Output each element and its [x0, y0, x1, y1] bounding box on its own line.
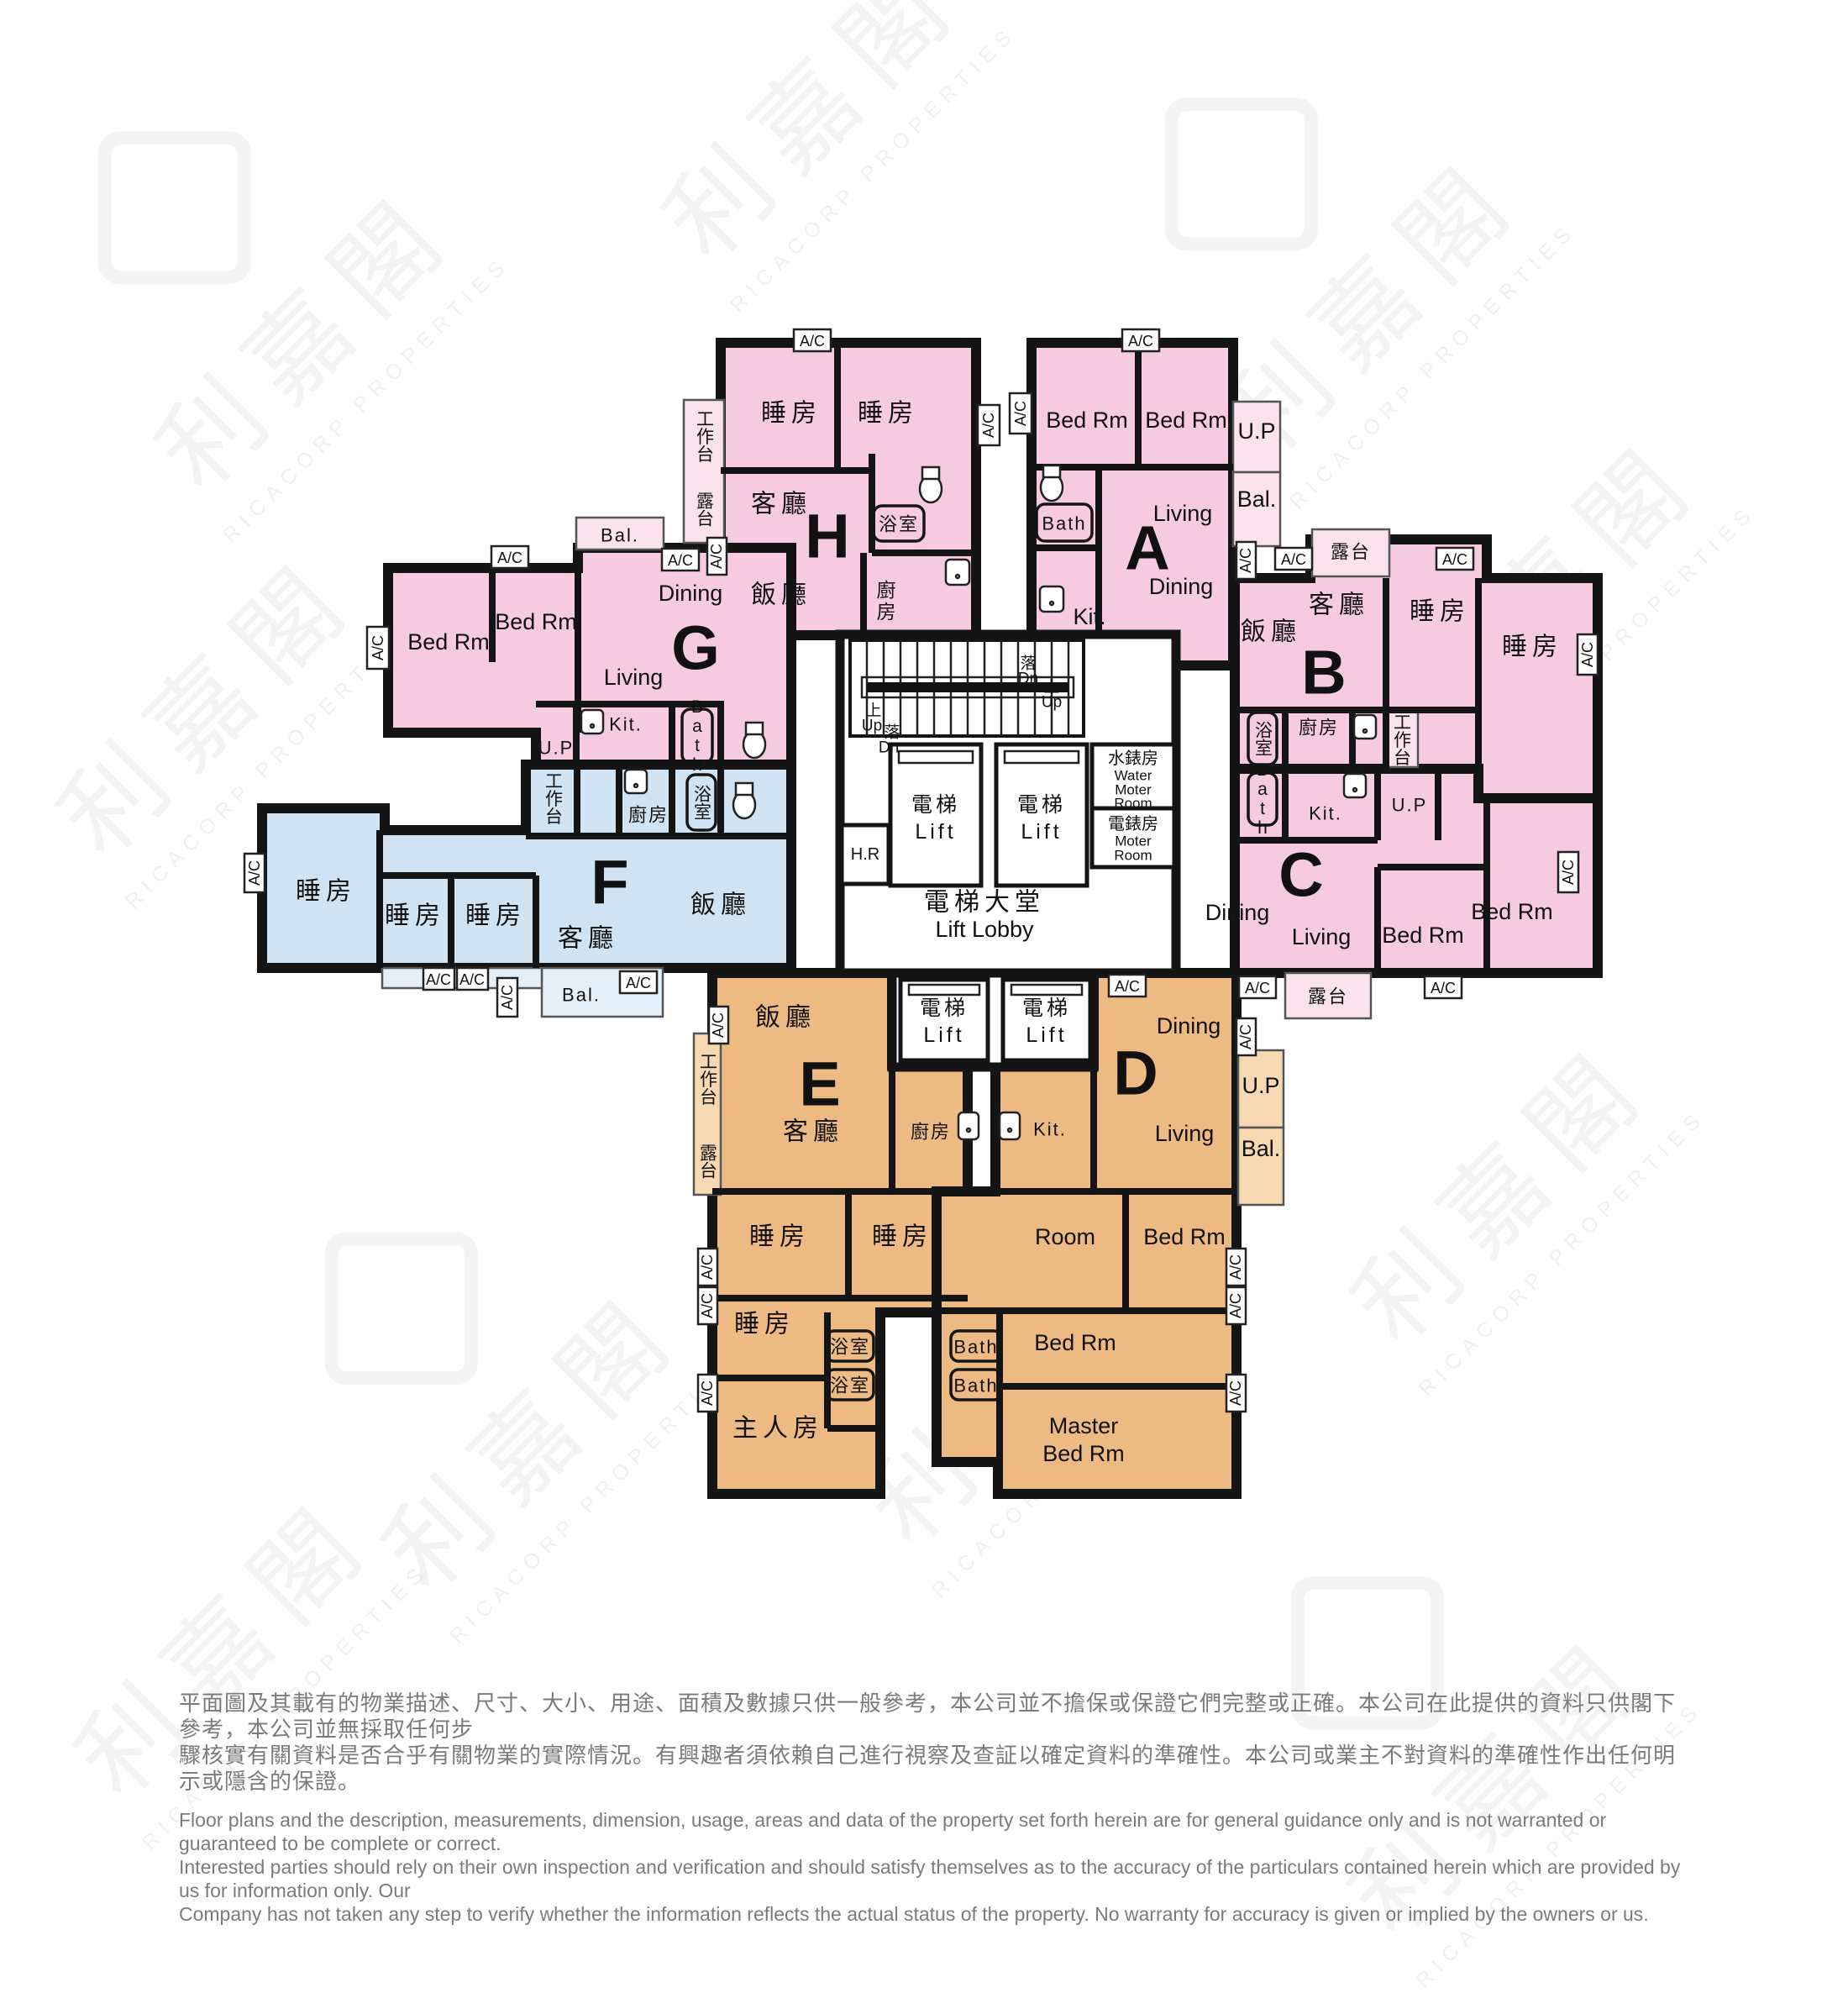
ac-label: A/C: [1281, 551, 1306, 568]
room-label-bedroom: Bed Rm: [1143, 1224, 1226, 1249]
ac-label: A/C: [980, 413, 997, 438]
room-label-bedroom: Bed Rm: [1145, 408, 1227, 433]
room-label-bedroom: 睡房: [465, 902, 526, 930]
room-label-balcony: 露台: [1308, 986, 1348, 1007]
lift-label: 電梯: [920, 996, 969, 1020]
disclaimer-gap: [179, 1795, 1691, 1808]
lift-label: 電梯: [911, 793, 960, 817]
ac-label: A/C: [626, 975, 651, 991]
room-label-utility: U.P: [1237, 418, 1275, 444]
kitchen-sink: [625, 770, 647, 793]
room-label-dining: 飯廳: [690, 891, 751, 919]
room-label-living: 客廳: [783, 1118, 843, 1146]
ac-label: A/C: [499, 985, 516, 1010]
kitchen-sink: [946, 560, 969, 585]
ac-label: A/C: [1237, 1024, 1254, 1049]
ac-label: A/C: [370, 635, 386, 660]
room-label-bedroom: 睡房: [296, 878, 356, 906]
lift-label: Lift: [1021, 820, 1062, 844]
toilet: [1041, 465, 1063, 501]
room-label-bedroom: 睡房: [761, 400, 822, 428]
room-label-living: Living: [1153, 501, 1213, 526]
room-label-bath: Bath: [1253, 760, 1273, 838]
lift-label: Lift: [923, 1023, 964, 1047]
kitchen-sink: [1040, 586, 1063, 612]
toilet: [743, 723, 765, 758]
room-label-living: Living: [1155, 1121, 1215, 1146]
room-label-bath: 浴室: [830, 1337, 870, 1358]
unit-letter-e: E: [799, 1049, 840, 1119]
ac-label: A/C: [708, 544, 725, 569]
ac-label: A/C: [246, 860, 263, 886]
hose-reel-label: H.R: [851, 845, 879, 864]
room-label-kitchen: 廚房: [628, 805, 669, 826]
electric-meter-label: 電錶房: [1108, 814, 1158, 833]
room-label-kitchen: Kit.: [1073, 604, 1105, 629]
kitchen-sink: [1354, 715, 1376, 739]
ac-label: A/C: [800, 333, 825, 350]
room-label-balcony: 露台: [1331, 542, 1371, 563]
room-label-dining: 飯廳: [751, 581, 811, 609]
room-label-balcony: Bal.: [1237, 486, 1277, 512]
room-label-balcony: Bal.: [1242, 1136, 1281, 1161]
room-label-bedroom: Bed Rm: [407, 629, 490, 655]
ac-label: A/C: [1128, 333, 1153, 350]
room-label-bath: 浴室: [879, 514, 919, 535]
room-label-bedroom: Bed Rm: [1471, 899, 1553, 924]
ac-label: A/C: [1237, 548, 1254, 573]
lift-label: Lift: [915, 820, 956, 844]
room-label-utility: U.P: [1392, 795, 1428, 816]
unit-letter-d: D: [1113, 1039, 1158, 1108]
room-label-bedroom: Bed Rm: [495, 609, 577, 634]
lift-label: Lift: [1026, 1023, 1067, 1047]
ac-label: A/C: [459, 971, 485, 988]
room-label-kitchen: 廚房: [1299, 718, 1339, 739]
room-label-master-bedroom: Bed Rm: [1042, 1441, 1125, 1466]
lift-shaft: [900, 980, 988, 1060]
room-label-living: 客廳: [1309, 592, 1369, 619]
unit-g-area: [388, 548, 791, 769]
stair-down-label-en: Dn: [879, 739, 899, 757]
water-meter-label-en: Room: [1114, 796, 1152, 812]
room-label-bedroom: 睡房: [734, 1311, 795, 1338]
room-label-kitchen: 廚房: [874, 580, 896, 623]
room-label-dining: Dining: [1149, 574, 1214, 599]
lift-lobby-label-en: Lift Lobby: [935, 917, 1034, 942]
ac-label: A/C: [1227, 1254, 1244, 1280]
kitchen-sink: [1344, 774, 1366, 797]
room-label-balcony: Bal.: [562, 985, 601, 1006]
room-label-worktop: 工作台: [543, 772, 564, 825]
ac-label: A/C: [426, 971, 451, 988]
kitchen-sink: [958, 1112, 979, 1139]
room-label-bedroom: 睡房: [872, 1223, 932, 1251]
room-label-dining: 飯廳: [755, 1004, 816, 1032]
room-label-kitchen: Kit.: [1309, 803, 1342, 824]
unit-letter-g: G: [671, 613, 720, 683]
room-label-bedroom: Bed Rm: [1382, 923, 1464, 948]
unit-letter-h: H: [805, 502, 849, 571]
toilet: [920, 467, 942, 502]
room-label-bedroom: 睡房: [858, 400, 918, 428]
room-label-living: Living: [604, 665, 664, 690]
disclaimer-zh-line2: 驟核實有關資料是否合乎有關物業的實際情況。有興趣者須依賴自己進行視察及查証以確定…: [179, 1743, 1691, 1795]
room-label-bath: Bath: [953, 1375, 998, 1396]
ac-label: A/C: [1012, 401, 1029, 426]
room-label-bath: 浴室: [692, 785, 712, 820]
unit-f-area: [262, 765, 791, 968]
lift-lobby-label: 電梯大堂: [924, 889, 1045, 917]
stair-up-label-en: Up: [862, 718, 882, 735]
ac-label: A/C: [1245, 980, 1270, 996]
room-label-dining: Dining: [1205, 900, 1270, 925]
room-label-dining: Dining: [659, 581, 723, 606]
ac-label: A/C: [1560, 860, 1577, 885]
room-label-room: Room: [1035, 1224, 1095, 1249]
room-label-living: 客廳: [558, 925, 618, 953]
room-label-bath: Bath: [953, 1337, 998, 1358]
disclaimer-en-line2: Interested parties should rely on their …: [179, 1855, 1691, 1902]
room-label-living: Living: [1292, 924, 1352, 949]
ac-label: A/C: [1227, 1293, 1244, 1318]
room-label-bedroom: 睡房: [1410, 598, 1470, 626]
room-label-balcony: 露台: [695, 492, 714, 527]
room-label-kitchen: Kit.: [609, 714, 643, 735]
room-label-bath: Bath: [1042, 513, 1086, 534]
room-label-dining: 飯廳: [1241, 618, 1301, 646]
room-label-bedroom: Bed Rm: [1034, 1330, 1116, 1355]
unit-letter-c: C: [1278, 840, 1323, 910]
ac-label: A/C: [1579, 642, 1596, 667]
disclaimer-zh-line1: 平面圖及其載有的物業描述、尺寸、大小、用途、面積及數據只供一般參考，本公司並不擔…: [179, 1691, 1691, 1743]
room-label-bath: 浴室: [830, 1375, 870, 1396]
room-label-balcony: Bal.: [601, 525, 639, 546]
ac-label: A/C: [699, 1380, 716, 1406]
room-label-master-bedroom: Master: [1049, 1413, 1119, 1438]
unit-letter-b: B: [1301, 638, 1346, 707]
room-label-worktop: 工作台: [698, 1053, 718, 1106]
room-label-worktop: 工作台: [695, 410, 715, 463]
room-label-bedroom: 睡房: [749, 1223, 810, 1251]
ac-label: A/C: [668, 552, 693, 569]
stair-up-label-en: Up: [1042, 694, 1062, 712]
lift-label: 電梯: [1017, 793, 1066, 817]
room-label-bedroom: 睡房: [1502, 634, 1562, 661]
water-meter-label: 水錶房: [1108, 749, 1158, 768]
room-label-bath: Bath: [688, 697, 707, 775]
ac-label: A/C: [699, 1254, 716, 1280]
unit-letter-f: F: [591, 848, 628, 918]
stair-down-label-en: Dn: [1018, 670, 1038, 688]
kitchen-sink: [1000, 1112, 1020, 1139]
room-label-kitchen: Kit.: [1033, 1119, 1067, 1140]
disclaimer: 平面圖及其載有的物業描述、尺寸、大小、用途、面積及數據只供一般參考，本公司並不擔…: [179, 1691, 1691, 1926]
lift-label: 電梯: [1022, 996, 1071, 1020]
room-label-living: 客廳: [751, 491, 811, 518]
toilet: [733, 783, 755, 818]
ac-label: A/C: [1442, 551, 1467, 568]
disclaimer-en-line3: Company has not taken any step to verify…: [179, 1902, 1691, 1926]
room-label-bath: 浴室: [1253, 721, 1273, 756]
ac-label: A/C: [699, 1293, 716, 1318]
ac-label: A/C: [1227, 1380, 1244, 1406]
room-label-kitchen: 廚房: [911, 1122, 951, 1143]
room-label-master-bedroom: 主人房: [732, 1415, 823, 1443]
ac-label: A/C: [710, 1012, 727, 1038]
room-label-utility: U.P: [538, 738, 575, 759]
room-label-bedroom: Bed Rm: [1046, 408, 1128, 433]
room-label-balcony: 露台: [698, 1144, 717, 1179]
ac-label: A/C: [1431, 980, 1456, 996]
room-label-worktop: 工作台: [1392, 713, 1412, 766]
room-label-utility: U.P: [1242, 1073, 1279, 1098]
room-label-dining: Dining: [1157, 1013, 1221, 1039]
room-label-bedroom: 睡房: [385, 902, 445, 930]
electric-meter-label-en: Room: [1114, 848, 1152, 864]
floor-plan: A/C A/C A/C A/C A/C A/C A/C A/C A/C A/C …: [0, 0, 1848, 1848]
lift-shaft: [1003, 980, 1090, 1060]
ac-label: A/C: [1115, 978, 1140, 995]
ac-label: A/C: [497, 550, 522, 566]
kitchen-sink: [581, 710, 603, 734]
